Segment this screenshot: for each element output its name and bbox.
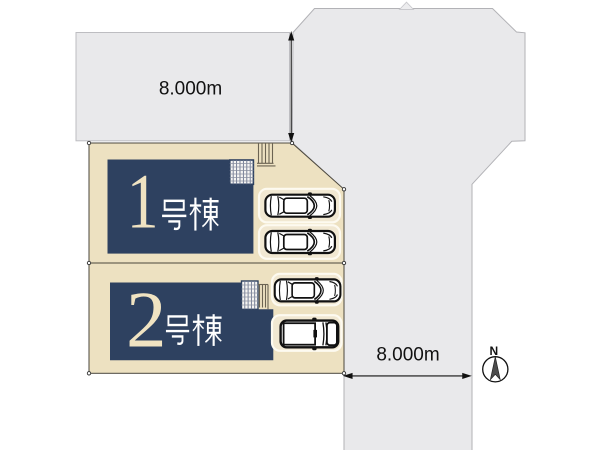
svg-text:1: 1 (127, 159, 159, 245)
svg-text:2: 2 (126, 275, 167, 365)
svg-text:8.000m: 8.000m (159, 78, 222, 99)
svg-text:N: N (489, 344, 498, 358)
svg-text:8.000m: 8.000m (376, 344, 439, 365)
